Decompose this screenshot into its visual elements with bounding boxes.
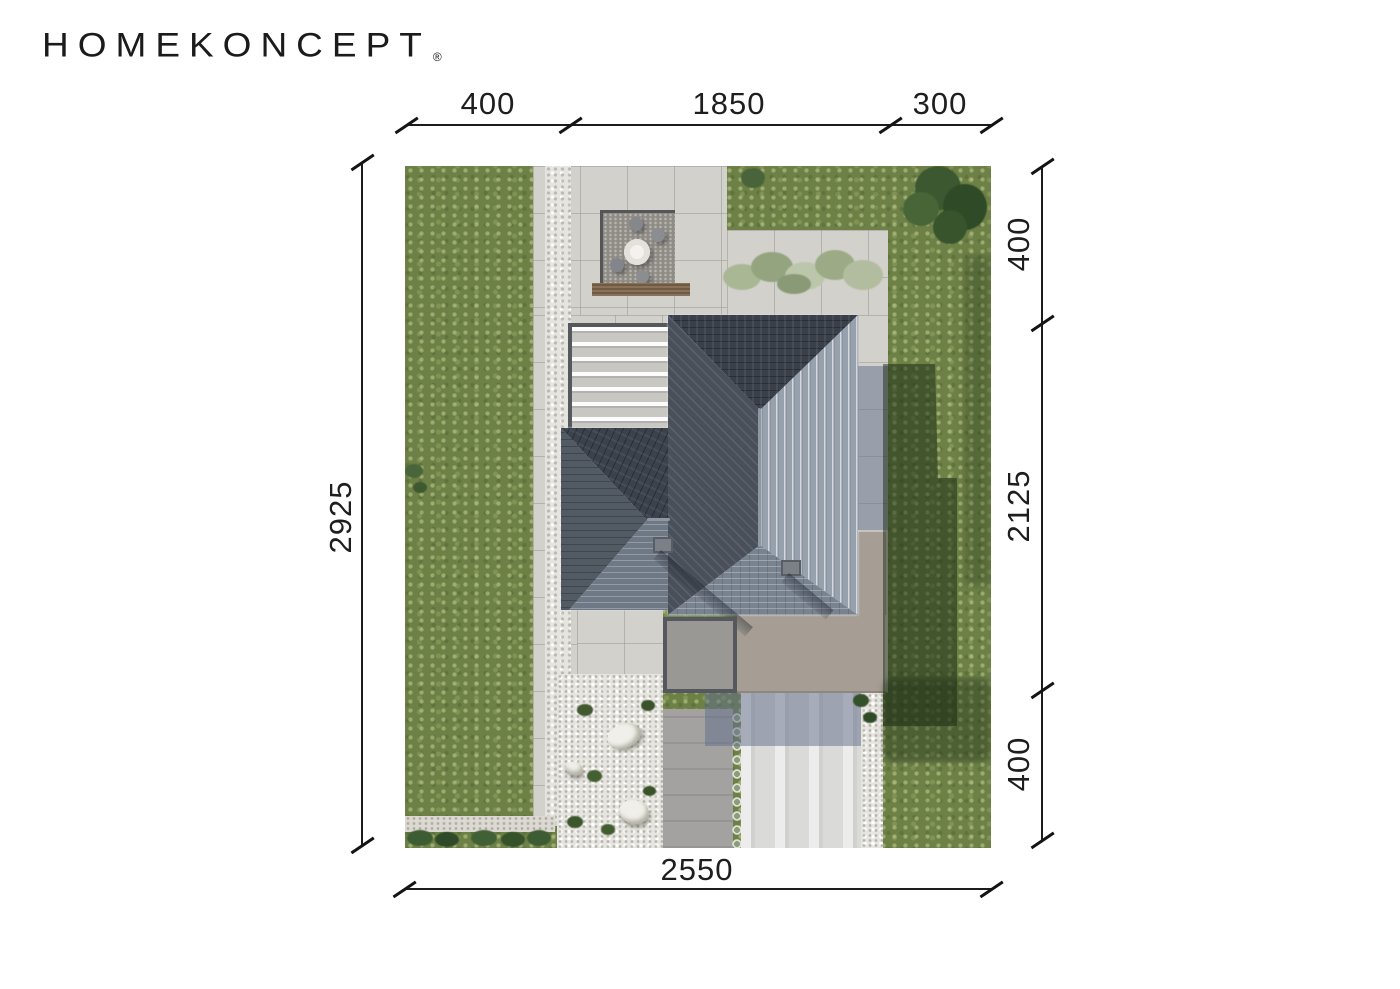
dimension-line xyxy=(404,888,991,890)
dimension-bottom: 2550 xyxy=(0,0,1400,989)
site-plan-sheet: HOMEKONCEPT ® xyxy=(0,0,1400,989)
dimension-value: 2550 xyxy=(637,852,757,888)
